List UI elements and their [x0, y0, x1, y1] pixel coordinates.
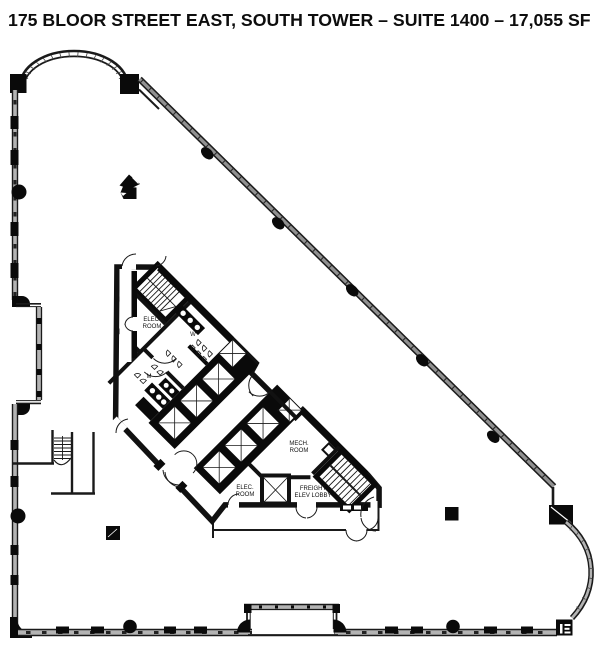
- svg-text:MECH.: MECH.: [289, 441, 309, 447]
- svg-text:W: W: [190, 332, 196, 338]
- svg-text:ELEC.: ELEC.: [236, 485, 254, 491]
- svg-text:175 BLOOR STREET EAST, SOUTH T: 175 BLOOR STREET EAST, SOUTH TOWER – SUI…: [8, 10, 591, 30]
- svg-text:ROOM: ROOM: [236, 492, 255, 498]
- svg-text:FREIGHT: FREIGHT: [300, 486, 327, 492]
- svg-text:ELEV LOBBY: ELEV LOBBY: [294, 493, 331, 499]
- svg-text:ROOM: ROOM: [290, 448, 309, 454]
- svg-text:M: M: [147, 374, 152, 380]
- svg-text:ELEC.: ELEC.: [143, 317, 161, 323]
- svg-text:ROOM: ROOM: [143, 324, 162, 330]
